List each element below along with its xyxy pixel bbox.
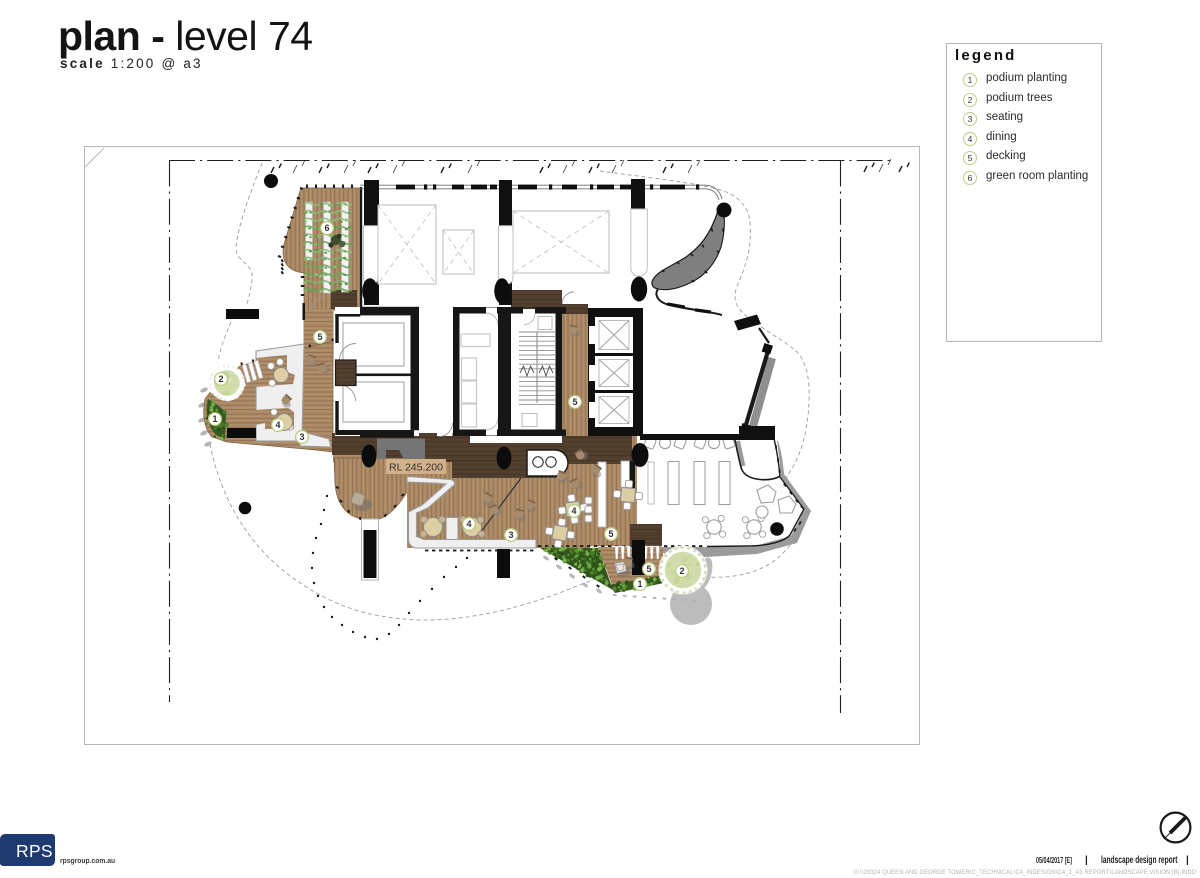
svg-text:RL 245.200: RL 245.200	[389, 462, 443, 474]
svg-text:4: 4	[571, 506, 576, 516]
svg-text:3: 3	[299, 432, 304, 442]
svg-text:4: 4	[466, 519, 471, 529]
svg-text:2: 2	[679, 566, 684, 576]
svg-text:5: 5	[572, 397, 577, 407]
svg-text:4: 4	[275, 420, 280, 430]
svg-text:1: 1	[212, 414, 217, 424]
svg-text:1: 1	[637, 579, 642, 589]
svg-text:6: 6	[324, 223, 329, 233]
svg-text:5: 5	[646, 564, 651, 574]
svg-text:5: 5	[608, 529, 613, 539]
svg-text:5: 5	[317, 332, 322, 342]
svg-text:2: 2	[218, 374, 223, 384]
svg-text:3: 3	[508, 530, 513, 540]
